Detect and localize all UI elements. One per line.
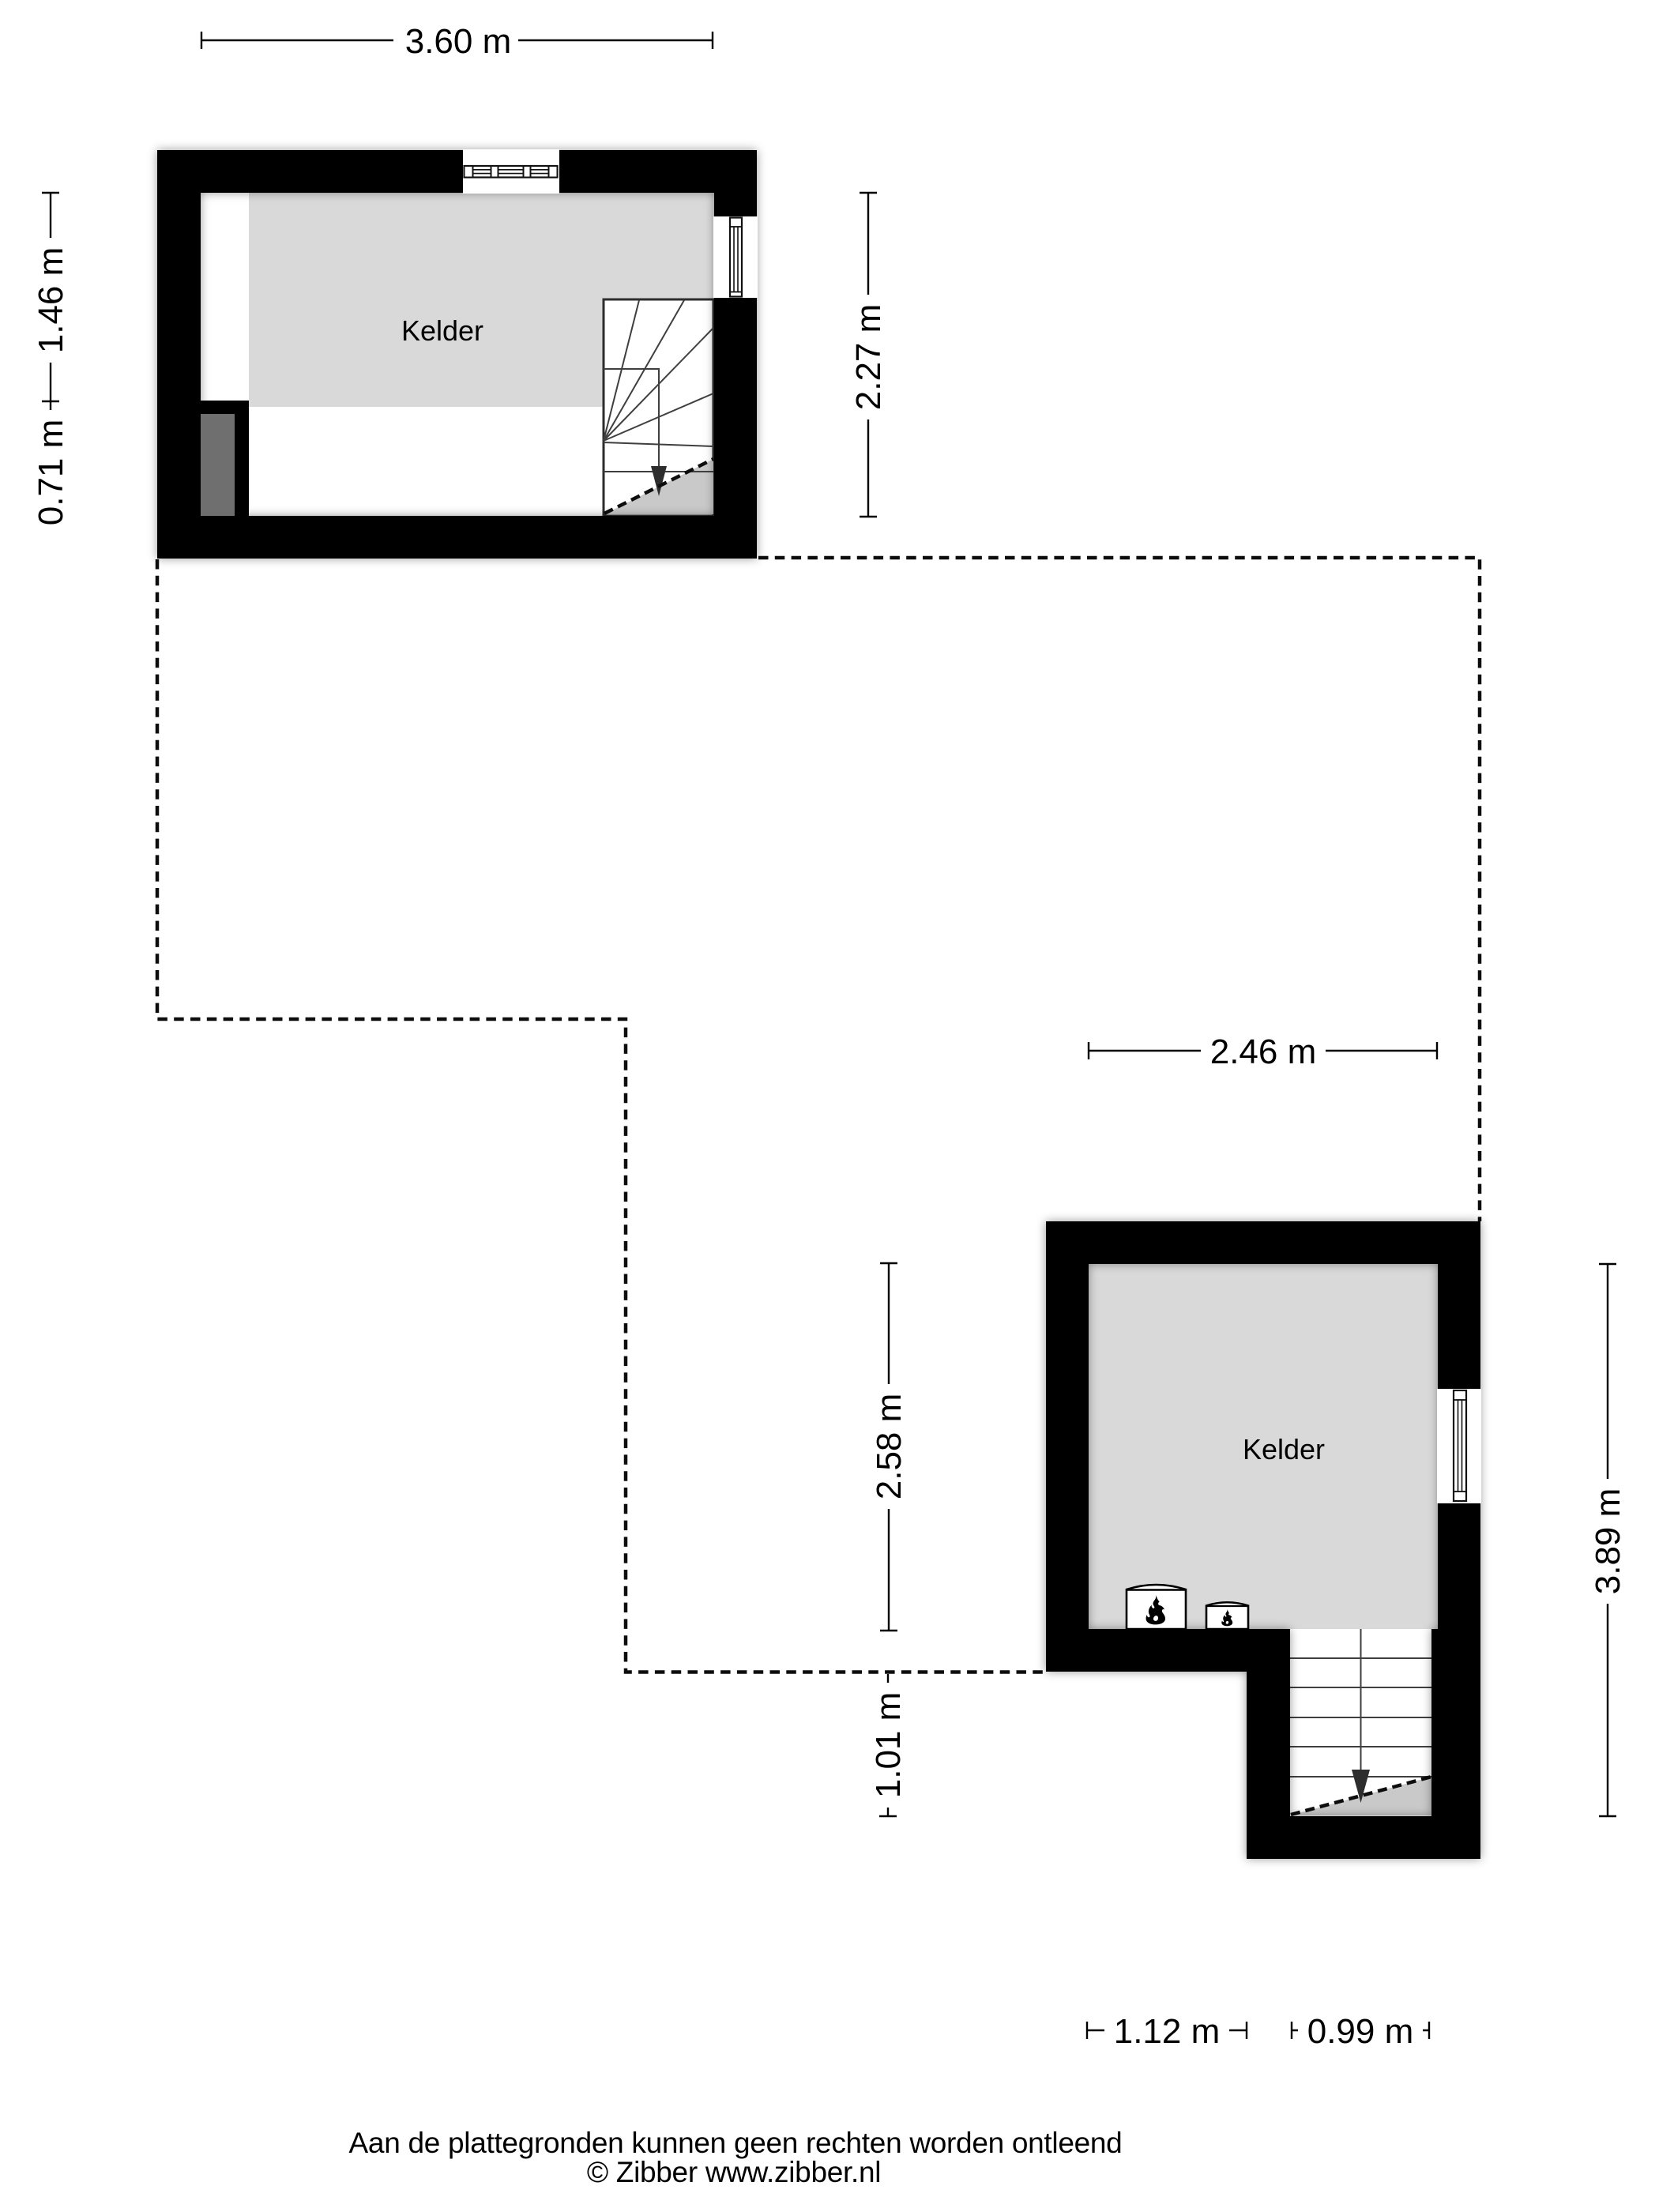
svg-text:3.89 m: 3.89 m bbox=[1589, 1488, 1627, 1595]
svg-text:1.46 m: 1.46 m bbox=[32, 247, 70, 354]
svg-text:0.71 m: 0.71 m bbox=[32, 419, 70, 526]
svg-text:3.60 m: 3.60 m bbox=[405, 22, 512, 61]
svg-text:0.99 m: 0.99 m bbox=[1307, 2012, 1414, 2051]
svg-text:Kelder: Kelder bbox=[401, 314, 483, 347]
svg-text:Kelder: Kelder bbox=[1243, 1433, 1325, 1465]
svg-text:2.58 m: 2.58 m bbox=[870, 1394, 908, 1500]
svg-text:2.46 m: 2.46 m bbox=[1210, 1033, 1317, 1071]
svg-text:2.27 m: 2.27 m bbox=[849, 304, 888, 411]
svg-text:1.01 m: 1.01 m bbox=[869, 1692, 908, 1799]
svg-text:Aan de plattegronden kunnen ge: Aan de plattegronden kunnen geen rechten… bbox=[349, 2127, 1123, 2159]
svg-text:1.12 m: 1.12 m bbox=[1114, 2012, 1221, 2051]
svg-text:© Zibber www.zibber.nl: © Zibber www.zibber.nl bbox=[587, 2156, 881, 2188]
